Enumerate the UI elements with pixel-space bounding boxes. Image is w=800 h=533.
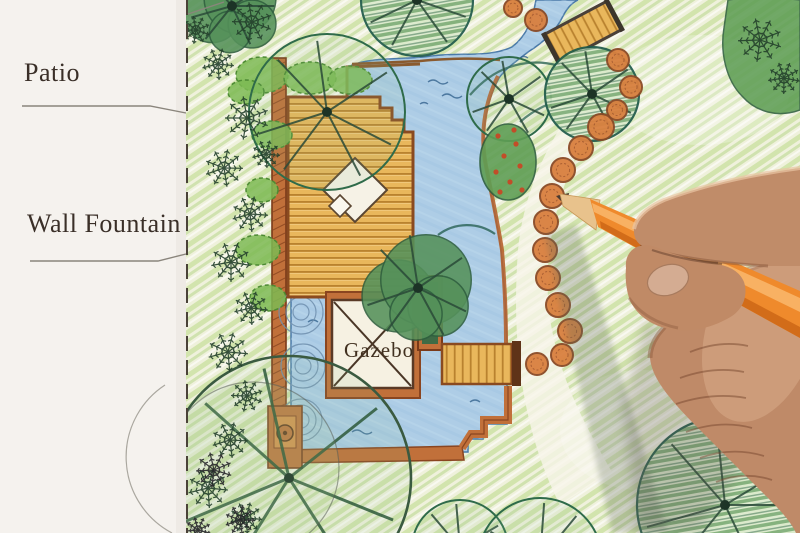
tree — [249, 34, 405, 190]
patio-label: Patio — [24, 58, 80, 88]
landscape-plan-photo: Patio Wall Fountain Gazebo — [0, 0, 800, 533]
stepping-stone — [526, 353, 548, 375]
stepping-stone — [569, 136, 593, 160]
stepping-stone — [607, 49, 629, 71]
stepping-stone — [551, 158, 575, 182]
plan-drawing — [0, 0, 800, 533]
stepping-stone — [588, 114, 614, 140]
wall-fountain-label: Wall Fountain — [27, 209, 181, 239]
stepping-stone — [504, 0, 522, 17]
boardwalk — [442, 341, 521, 386]
berry-shrubs — [480, 124, 536, 200]
gazebo-label: Gazebo — [344, 338, 414, 363]
stepping-stone — [620, 76, 642, 98]
stepping-stone — [525, 9, 547, 31]
stepping-stone — [551, 344, 573, 366]
stepping-stone — [534, 210, 558, 234]
